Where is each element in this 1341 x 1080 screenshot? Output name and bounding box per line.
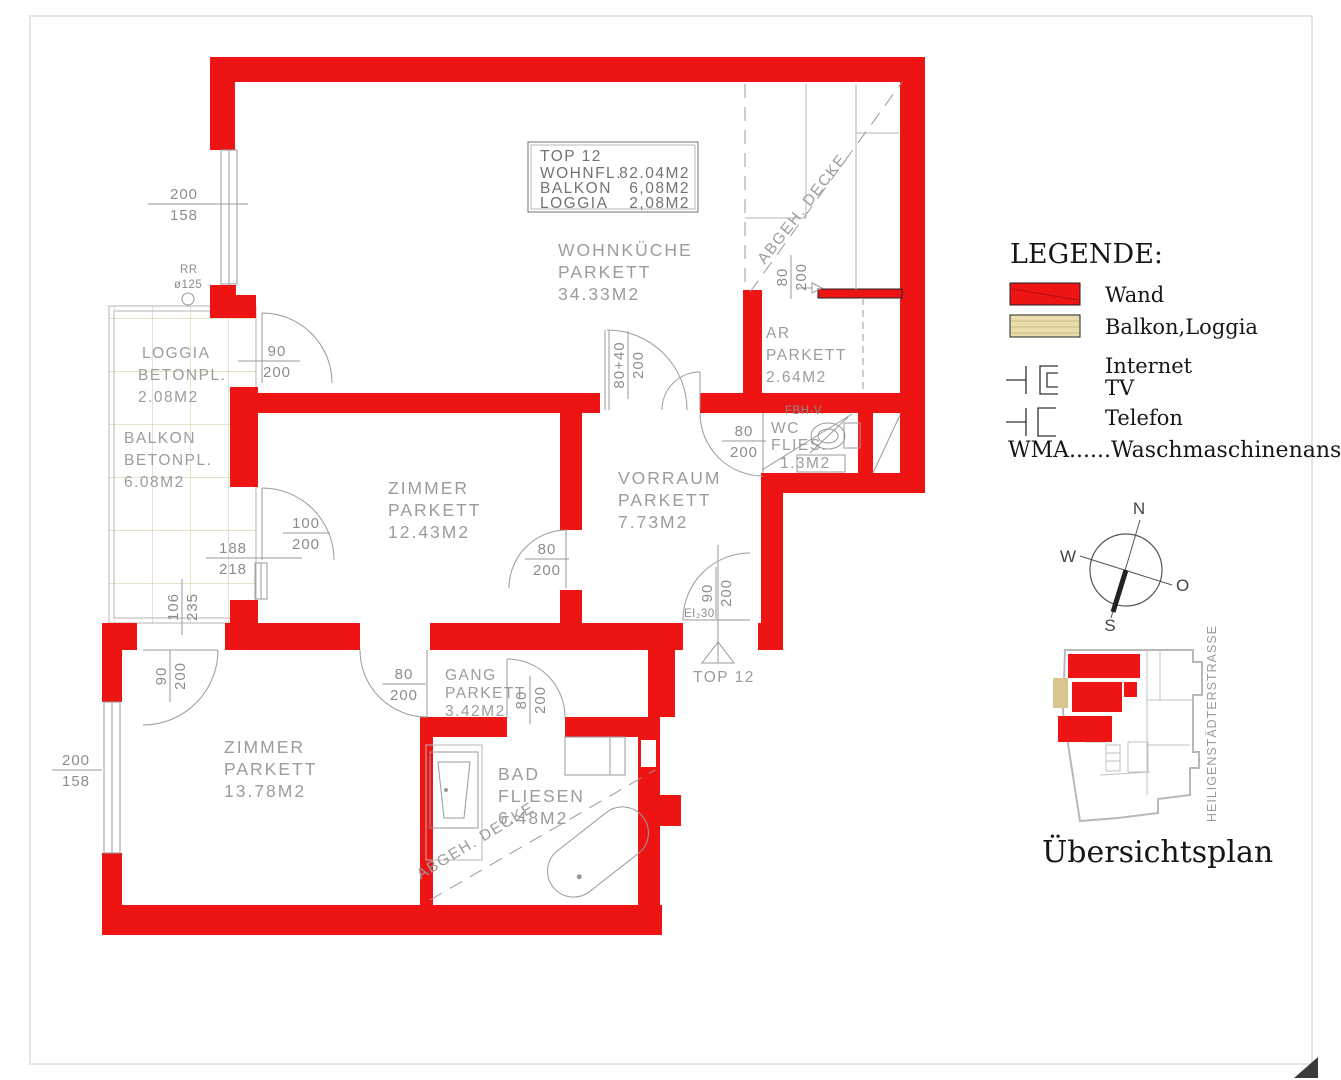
svg-text:200: 200 [533, 562, 561, 579]
svg-text:158: 158 [62, 773, 90, 790]
svg-text:AR: AR [766, 325, 791, 342]
svg-text:200: 200 [532, 686, 549, 714]
svg-text:188: 188 [219, 540, 247, 557]
svg-text:100: 100 [292, 515, 320, 532]
svg-text:BETONPL.: BETONPL. [138, 367, 226, 384]
svg-text:200: 200 [170, 186, 198, 203]
svg-text:13.78M2: 13.78M2 [224, 781, 306, 801]
svg-text:PARKETT: PARKETT [388, 500, 481, 520]
entry-top12-label: TOP 12 [693, 669, 755, 686]
svg-text:90: 90 [268, 343, 287, 360]
legend-telefon-label: Telefon [1105, 406, 1183, 430]
room-label-wohnkueche: WOHNKÜCHE PARKETT 34.33M2 [558, 240, 693, 304]
svg-text:GANG: GANG [445, 667, 497, 684]
svg-text:200: 200 [730, 444, 758, 461]
svg-text:90: 90 [153, 667, 170, 686]
window-zimmer1 [255, 563, 267, 599]
window-bottom-left [104, 702, 120, 853]
legend-wand-label: Wand [1105, 283, 1164, 307]
svg-text:200: 200 [793, 263, 810, 291]
floorplan-sheet: ABGEH. DECKE ABGEH. DECKE TOP 12 WOHNFL.… [0, 0, 1341, 1080]
legend-tv-label: TV [1105, 376, 1135, 400]
svg-text:158: 158 [170, 207, 198, 224]
svg-text:3.42M2: 3.42M2 [445, 703, 506, 720]
svg-text:80: 80 [538, 541, 557, 558]
svg-text:WC: WC [771, 420, 800, 437]
dim-window-top: 200 158 [148, 186, 248, 224]
svg-text:PARKETT: PARKETT [224, 759, 317, 779]
room-label-vorraum: VORRAUM PARKETT 7.73M2 [618, 468, 721, 532]
svg-text:80+40: 80+40 [611, 341, 628, 388]
legend: LEGENDE: Wand Balkon,Loggia Internet TV … [1006, 239, 1341, 463]
svg-text:2.64M2: 2.64M2 [766, 369, 827, 386]
floorplan-drawing: ABGEH. DECKE ABGEH. DECKE TOP 12 WOHNFL.… [0, 0, 1341, 1080]
dim-zimmer1-door: 80 200 [525, 541, 569, 579]
svg-text:LOGGIA: LOGGIA [142, 345, 210, 362]
dim-wc-door: 80 200 [722, 423, 766, 461]
svg-text:ZIMMER: ZIMMER [388, 478, 469, 498]
dim-gang-door: 80 200 [382, 666, 426, 704]
shaft-diagonal [873, 415, 900, 473]
rr-pipe-icon [182, 293, 194, 305]
rr-label: RR [180, 264, 198, 276]
washing-machine [565, 737, 625, 775]
tb-row3-label: LOGGIA [540, 195, 608, 212]
svg-text:200: 200 [630, 351, 647, 379]
svg-text:218: 218 [219, 561, 247, 578]
kitchen-lines [745, 82, 902, 392]
svg-text:235: 235 [184, 593, 201, 621]
svg-text:ZIMMER: ZIMMER [224, 737, 305, 757]
svg-text:106: 106 [165, 593, 182, 621]
compass-o: O [1176, 576, 1189, 595]
svg-text:200: 200 [172, 662, 189, 690]
dim-kitchen-pass: 80 200 [774, 255, 810, 299]
svg-text:7.73M2: 7.73M2 [618, 512, 688, 532]
abgeh-decke-kitchen-label: ABGEH. DECKE [754, 151, 850, 267]
svg-text:90: 90 [699, 584, 716, 603]
svg-text:6.48M2: 6.48M2 [498, 808, 568, 828]
kitchen-pass-sill [818, 289, 902, 298]
wall-niche [641, 740, 656, 767]
compass-s: S [1104, 616, 1115, 635]
tb-row3-value: 2,08M2 [629, 195, 690, 212]
legend-internet-label: Internet [1105, 354, 1193, 378]
svg-text:2.08M2: 2.08M2 [138, 389, 199, 406]
washbasin [430, 752, 478, 828]
room-label-zimmer2: ZIMMER PARKETT 13.78M2 [224, 737, 317, 801]
telefon-icon [1006, 408, 1056, 436]
svg-text:PARKETT: PARKETT [766, 347, 847, 364]
svg-text:BETONPL.: BETONPL. [124, 452, 212, 469]
svg-text:PARKETT: PARKETT [618, 490, 711, 510]
svg-text:FLIES.: FLIES. [771, 437, 827, 454]
compass-n: N [1133, 499, 1145, 518]
compass: N W O S [1060, 499, 1189, 635]
svg-text:80: 80 [774, 268, 791, 287]
room-label-zimmer1: ZIMMER PARKETT 12.43M2 [388, 478, 481, 542]
compass-w: W [1060, 547, 1076, 566]
svg-text:1.3M2: 1.3M2 [780, 455, 831, 472]
svg-text:200: 200 [62, 752, 90, 769]
page-corner-mark [1294, 1057, 1318, 1078]
svg-text:80: 80 [513, 691, 530, 710]
dim-double-door: 80+40 200 [611, 331, 647, 399]
svg-text:VORRAUM: VORRAUM [618, 468, 721, 488]
dim-bad-door: 80 200 [513, 676, 549, 724]
svg-text:200: 200 [718, 579, 735, 607]
svg-text:WOHNKÜCHE: WOHNKÜCHE [558, 240, 693, 260]
svg-text:80: 80 [395, 666, 414, 683]
svg-text:BALKON: BALKON [124, 430, 196, 447]
svg-text:BAD: BAD [498, 764, 540, 784]
rr-diameter-label: ø125 [174, 279, 202, 291]
svg-text:PARKETT: PARKETT [558, 262, 651, 282]
room-label-wc: WC FLIES. 1.3M2 [771, 420, 831, 472]
street-label: HEILIGENSTÄDTERSTRASSE [1205, 625, 1219, 822]
title-block-top: TOP 12 [540, 148, 602, 165]
window-top-left [221, 150, 237, 284]
entry-rating-label: EI₂30 [684, 608, 715, 620]
legend-balkon-label: Balkon,Loggia [1105, 315, 1258, 339]
legend-wma-label: WMA......Waschmaschinenanschlu [1008, 438, 1341, 463]
svg-text:200: 200 [263, 364, 291, 381]
svg-text:80: 80 [735, 423, 754, 440]
overview-plan: HEILIGENSTÄDTERSTRASSE Übersichtsplan [1042, 625, 1273, 870]
overview-caption: Übersichtsplan [1042, 834, 1273, 870]
internet-tv-icon [1006, 366, 1058, 394]
svg-text:12.43M2: 12.43M2 [388, 522, 470, 542]
title-block: TOP 12 WOHNFL. 82.04M2 BALKON 6,08M2 LOG… [528, 142, 698, 212]
svg-text:34.33M2: 34.33M2 [558, 284, 640, 304]
svg-text:200: 200 [292, 536, 320, 553]
fbhv-label: FBH-V. [785, 405, 825, 417]
svg-text:6.08M2: 6.08M2 [124, 474, 185, 491]
svg-text:200: 200 [390, 687, 418, 704]
legend-title: LEGENDE: [1010, 239, 1163, 270]
dim-zimmer2-door: 90 200 [153, 650, 189, 702]
balkon-swatch-icon [1010, 315, 1080, 337]
dim-window-left: 200 158 [52, 752, 102, 790]
annotations: RR ø125 FBH-V. EI₂30 TOP 12 [174, 264, 825, 686]
room-label-ar: AR PARKETT 2.64M2 [766, 325, 847, 386]
overview-balkon [1053, 678, 1068, 708]
svg-text:FLIESEN: FLIESEN [498, 786, 585, 806]
